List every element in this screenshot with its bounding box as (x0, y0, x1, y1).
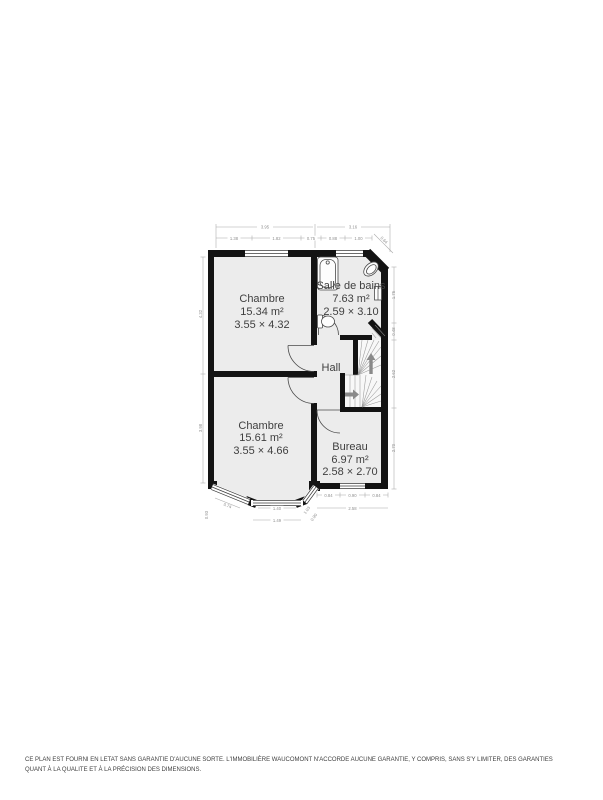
chambre1-area: 15.34 m² (240, 306, 284, 318)
dim-left-2: 3.98 (198, 423, 203, 432)
dim-top-overall-left: 3.95 (261, 225, 270, 230)
dim-bureau-seg-1: 0.84 (324, 493, 333, 498)
dim-right-4: 2.70 (391, 443, 396, 452)
chambre-divider-wall (214, 371, 317, 377)
dim-top-seg-1: 1.38 (230, 236, 239, 241)
dim-left-1: 4.32 (198, 309, 203, 318)
chambre2-name: Chambre (238, 420, 283, 432)
window-bathroom (336, 250, 363, 257)
divider-wall-top (311, 257, 317, 345)
window-chambre1 (245, 250, 288, 257)
dim-bureau-overall: 2.58 (348, 506, 357, 511)
chambre1-name: Chambre (239, 293, 284, 305)
dim-top-seg-5: 1.00 (354, 236, 363, 241)
dim-right-1: 1.75 (391, 290, 396, 299)
dim-top-seg-4: 0.88 (329, 236, 338, 241)
dim-bureau-seg-2: 0.90 (348, 493, 357, 498)
stair-wall-lower (340, 373, 345, 412)
dim-right-3: 2.62 (391, 369, 396, 378)
bureau-bottom-wall-left (317, 483, 340, 489)
bureau-name: Bureau (332, 441, 367, 453)
right-wall (381, 267, 388, 489)
top-wall-mid (288, 250, 336, 257)
chambre2-area: 15.61 m² (239, 432, 283, 444)
dim-bay-overall: 1.49 (273, 518, 282, 523)
disclaimer-text: CE PLAN EST FOURNI EN LETAT SANS GARANTI… (25, 756, 573, 775)
bureau-size: 2.58 × 2.70 (322, 466, 377, 478)
dim-top-overall-right: 3.16 (349, 225, 358, 230)
bureau-bottom-wall-right (365, 483, 388, 489)
bathroom-name: Salle de bains (316, 280, 386, 292)
stair-wall-upper (353, 335, 358, 375)
hall-name: Hall (322, 362, 341, 374)
dim-bay-right: 0.90 (309, 512, 318, 522)
dim-top-seg-3: 0.75 (307, 236, 316, 241)
dim-bay-left: 0.93 (204, 510, 209, 519)
dim-bay-diag-right: 1.03 (302, 505, 311, 515)
left-wall (208, 250, 214, 489)
dim-top-seg-2: 1.82 (272, 236, 281, 241)
bureau-top-wall (340, 407, 388, 412)
dim-right-2: 0.48 (391, 327, 396, 336)
bathroom-area: 7.63 m² (332, 293, 370, 305)
dim-chamfer: 0.64 (379, 235, 389, 245)
chambre2-size: 3.55 × 4.66 (233, 445, 288, 457)
bureau-area: 6.97 m² (331, 454, 369, 466)
floor-plan-page: 3.95 3.16 1.38 1.82 0.75 0.88 1.00 0.64 … (0, 0, 603, 800)
divider-wall-bottom (311, 403, 317, 483)
dim-bureau-seg-3: 0.84 (372, 493, 381, 498)
dim-bay-diag-left: 0.74 (223, 502, 233, 510)
window-bureau (340, 483, 365, 489)
chambre1-size: 3.55 × 4.32 (234, 319, 289, 331)
floor-plan: 3.95 3.16 1.38 1.82 0.75 0.88 1.00 0.64 … (0, 0, 603, 800)
bathroom-size: 2.59 × 3.10 (323, 306, 378, 318)
dim-bay-window: 1.40 (273, 506, 282, 511)
